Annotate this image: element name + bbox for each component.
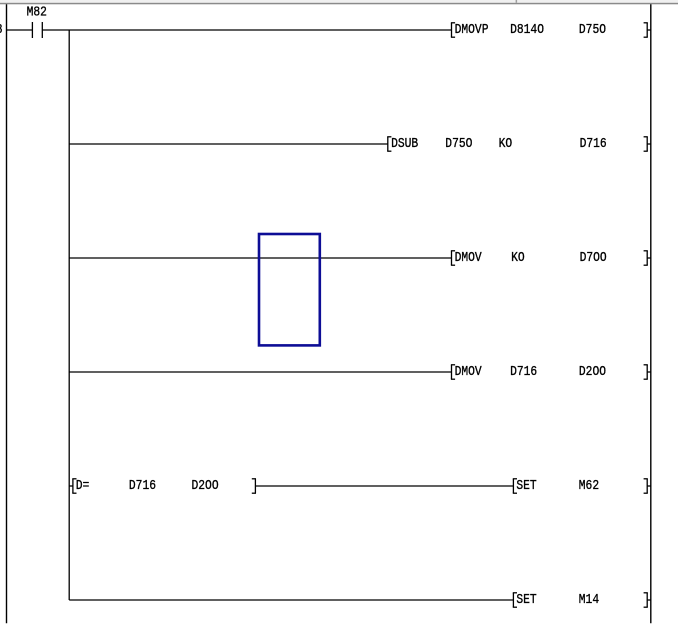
svg-text:D716: D716 xyxy=(510,364,537,380)
svg-text:DMOVP: DMOVP xyxy=(455,22,489,38)
svg-text:D2OO: D2OO xyxy=(579,364,606,380)
svg-text:M62: M62 xyxy=(579,478,599,494)
svg-text:DMOV: DMOV xyxy=(455,364,483,380)
svg-text:D75O: D75O xyxy=(579,22,606,38)
svg-text:D2OO: D2OO xyxy=(192,478,219,494)
svg-text:DMOV: DMOV xyxy=(455,250,483,266)
svg-text:M14: M14 xyxy=(579,592,599,608)
svg-text:SET: SET xyxy=(516,478,536,494)
svg-text:D7OO: D7OO xyxy=(580,250,607,266)
svg-text:M82: M82 xyxy=(27,5,47,21)
svg-text:D=: D= xyxy=(76,478,90,494)
svg-text:KO: KO xyxy=(511,250,525,266)
svg-text:SET: SET xyxy=(516,592,536,608)
svg-text:D716: D716 xyxy=(580,136,607,152)
svg-text:8: 8 xyxy=(0,22,3,38)
svg-text:DSUB: DSUB xyxy=(391,136,418,152)
svg-text:D75O: D75O xyxy=(445,136,472,152)
svg-text:KO: KO xyxy=(499,136,513,152)
svg-text:D814O: D814O xyxy=(510,22,544,38)
svg-text:D716: D716 xyxy=(129,478,156,494)
